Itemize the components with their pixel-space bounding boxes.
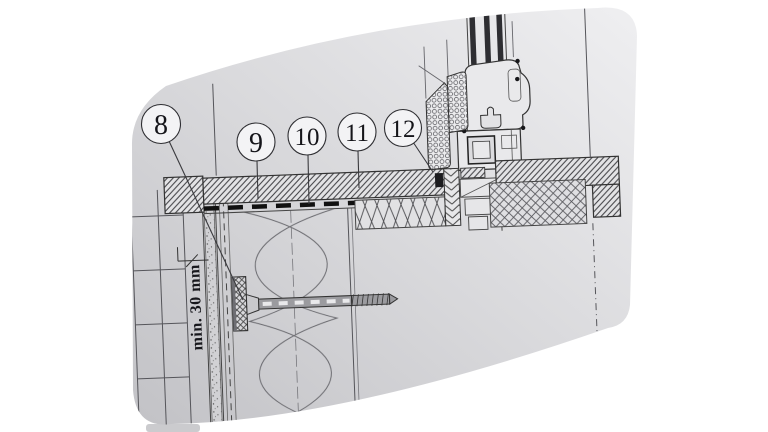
screenshot-canvas: min. 30 mm [0,0,768,432]
callout-11-label: 11 [345,120,369,147]
sealing-block [435,173,444,187]
insulation-batt [232,208,360,432]
dimension-label: min. 30 mm [186,264,206,351]
sheet-shadow [146,424,200,432]
compriband-tape [444,168,461,226]
masonry-crosshatch [489,179,587,227]
detail-drawing: min. 30 mm [0,0,768,432]
callout-9-label: 9 [249,128,263,159]
callout-8-label: 8 [154,110,168,141]
soffit-board-end-cap [164,176,204,213]
callout-10-label: 10 [295,124,320,151]
undersill-insulation-strip [355,197,446,229]
callout-12-label: 12 [391,116,416,143]
lintel-corner-leg [592,184,620,217]
